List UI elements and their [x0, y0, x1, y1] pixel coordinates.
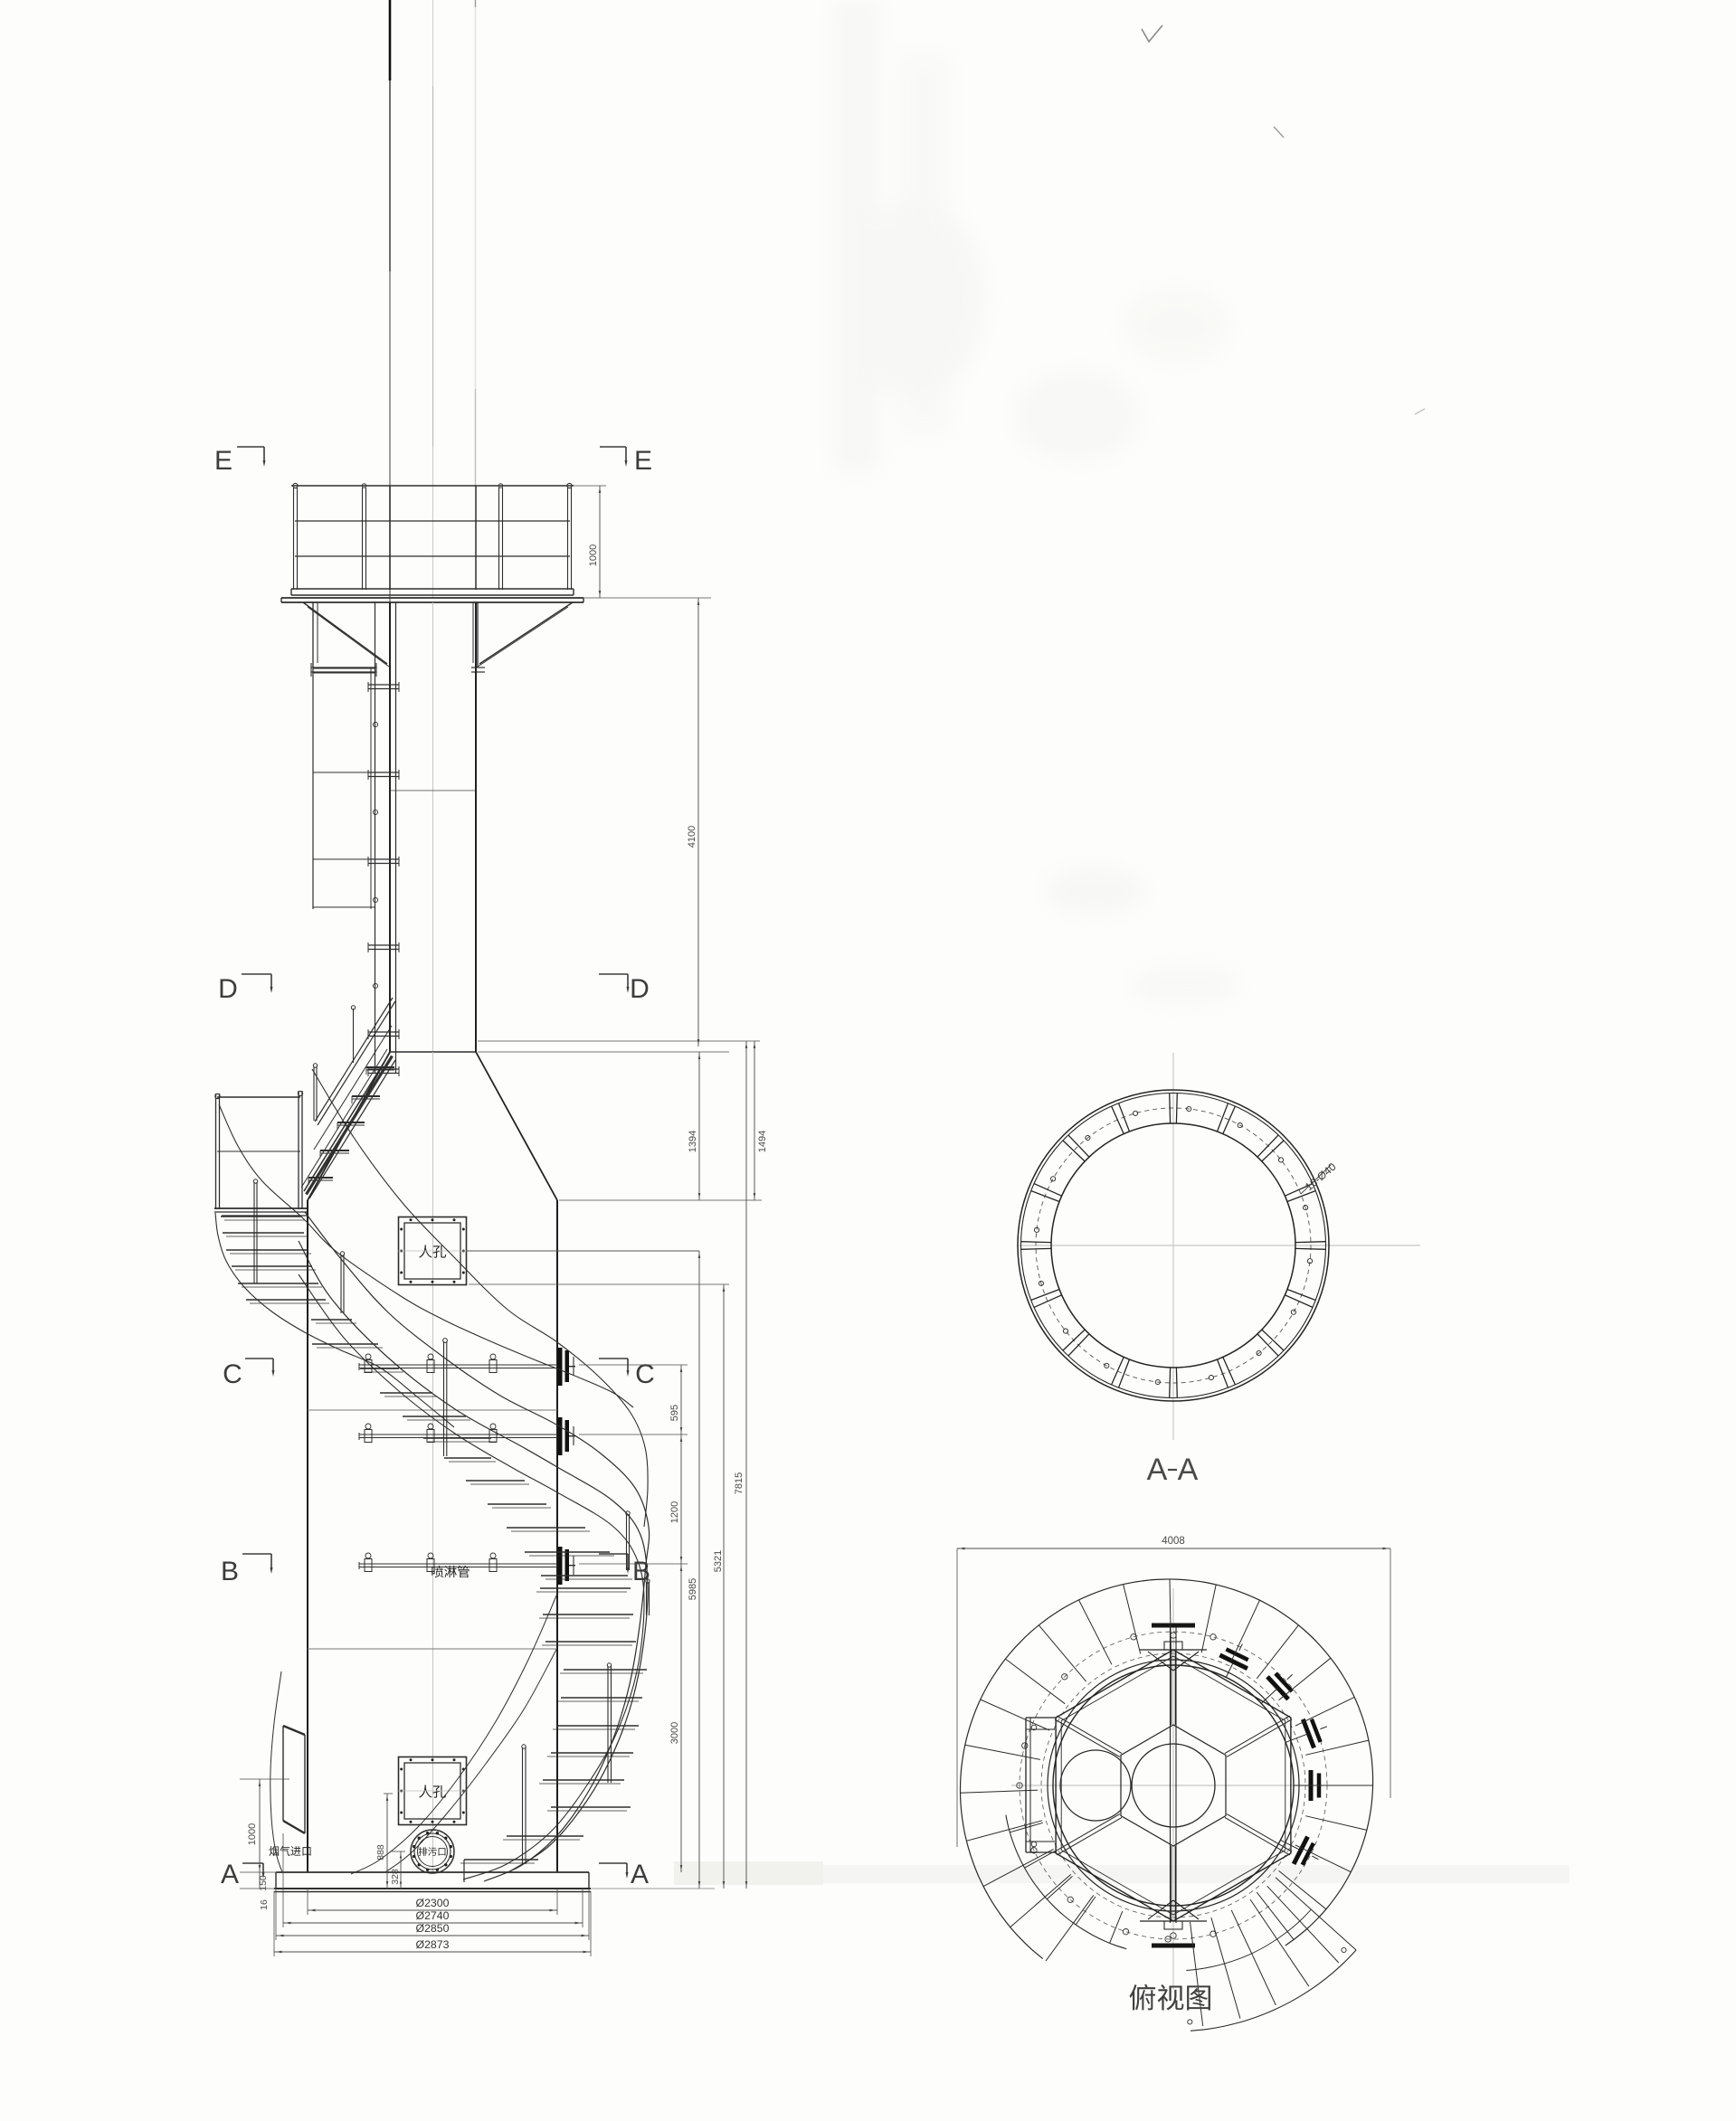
svg-text:D: D	[218, 974, 238, 1004]
svg-text:A: A	[1147, 1453, 1168, 1487]
svg-text:C: C	[635, 1359, 655, 1389]
svg-text:5321: 5321	[713, 1550, 724, 1572]
svg-text:1200: 1200	[669, 1501, 680, 1523]
svg-text:4100: 4100	[687, 826, 697, 847]
svg-text:328: 328	[390, 1869, 401, 1885]
svg-text:A: A	[221, 1860, 239, 1889]
svg-text:1000: 1000	[247, 1823, 258, 1845]
svg-text:E: E	[634, 446, 652, 476]
svg-text:E: E	[214, 446, 232, 476]
svg-text:B: B	[221, 1557, 239, 1586]
svg-text:Ø2740: Ø2740	[416, 1909, 450, 1922]
svg-text:A: A	[1178, 1453, 1199, 1487]
svg-text:A: A	[631, 1860, 649, 1889]
svg-text:3000: 3000	[669, 1722, 680, 1744]
svg-text:16: 16	[259, 1899, 270, 1910]
svg-text:1494: 1494	[757, 1131, 768, 1152]
svg-text:888: 888	[375, 1844, 386, 1861]
svg-text:Ø2873: Ø2873	[416, 1938, 450, 1951]
svg-text:1394: 1394	[688, 1131, 698, 1152]
svg-text:1000: 1000	[588, 544, 599, 566]
svg-text:4008: 4008	[1162, 1536, 1185, 1547]
svg-text:Ø2300: Ø2300	[416, 1897, 450, 1909]
svg-text:7815: 7815	[734, 1472, 745, 1494]
svg-text:5985: 5985	[688, 1578, 698, 1600]
svg-text:C: C	[223, 1359, 242, 1389]
svg-text:D: D	[630, 974, 650, 1004]
svg-text:Ø2850: Ø2850	[416, 1922, 450, 1935]
svg-text:150: 150	[258, 1875, 269, 1891]
svg-text:595: 595	[669, 1405, 680, 1421]
